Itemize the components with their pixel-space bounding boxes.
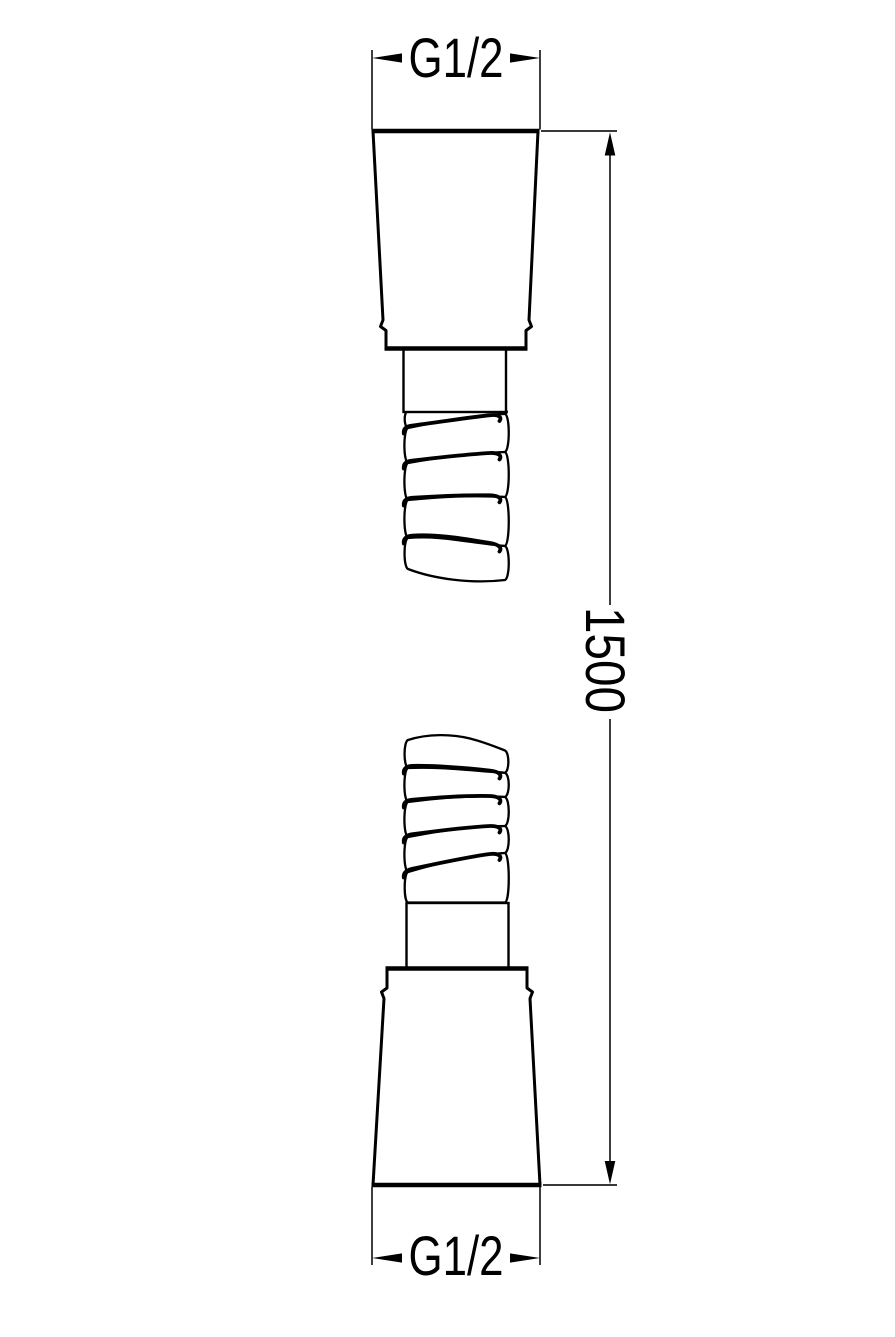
bottom-connector-body [373,969,540,1186]
bottom-hose-collar [407,903,509,969]
dimension-hose-length: 1500 [541,131,637,1185]
arrow-up-icon [605,132,616,155]
hose-spiral-lower [404,735,509,902]
dimension-top-thread: G1/2 [372,26,540,130]
technical-drawing-page: G1/2 1500 G1/2 [0,0,895,1337]
arrow-right-icon [510,53,540,62]
top-connector-body [373,131,538,349]
bottom-thread-label: G1/2 [409,1224,504,1287]
shower-hose-dimension-drawing: G1/2 1500 G1/2 [0,0,895,1337]
top-thread-label: G1/2 [409,26,504,89]
top-connector [372,131,540,349]
dimension-bottom-thread: G1/2 [372,1187,540,1287]
hose-length-label: 1500 [574,607,637,713]
top-hose-collar [404,349,507,413]
arrow-right-icon [510,1253,540,1262]
bottom-connector [372,969,542,1186]
arrow-left-icon [372,1253,402,1262]
hose-spiral-upper [404,411,509,582]
arrow-down-icon [605,1161,616,1184]
arrow-left-icon [372,53,402,62]
